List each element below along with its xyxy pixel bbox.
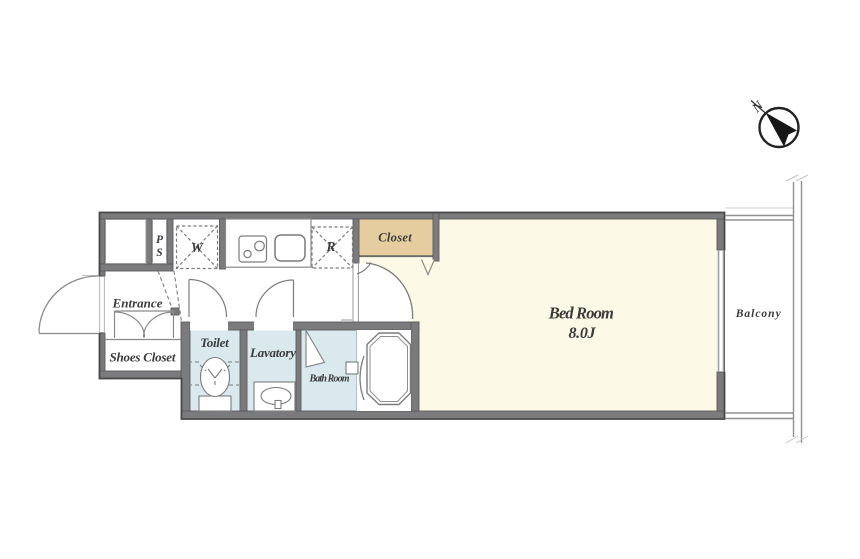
svg-text:Bed Room: Bed Room [548,303,614,322]
svg-text:Lavatory: Lavatory [249,345,296,360]
svg-text:P: P [156,234,164,246]
svg-text:R: R [325,239,335,254]
svg-text:Toilet: Toilet [200,335,229,350]
svg-text:Closet: Closet [378,231,412,245]
svg-text:Balcony: Balcony [735,308,782,320]
svg-text:W: W [191,240,204,255]
svg-text:Shoes Closet: Shoes Closet [110,349,176,364]
svg-text:Bath Room: Bath Room [309,374,350,385]
svg-text:8.0J: 8.0J [569,325,597,342]
svg-text:S: S [156,247,162,259]
svg-text:Entrance: Entrance [112,296,163,311]
